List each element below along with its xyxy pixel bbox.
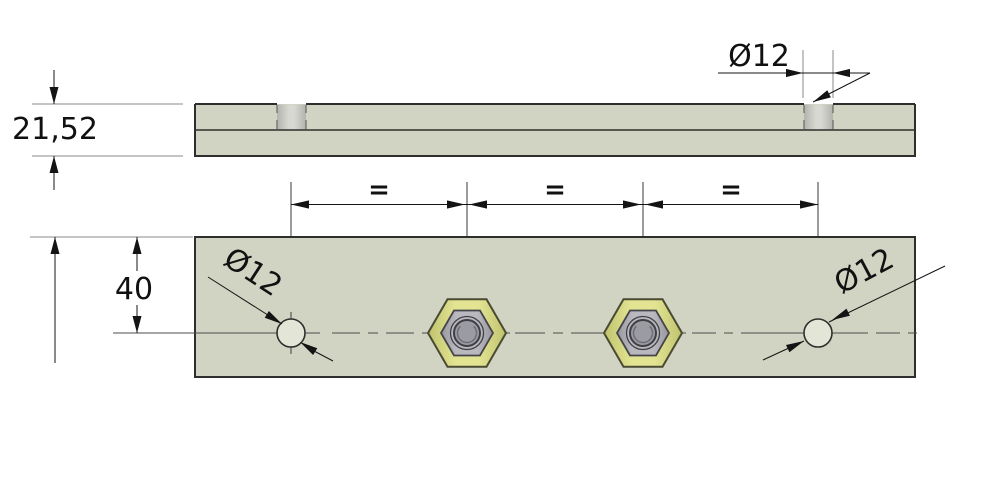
arrowhead-right-icon: [623, 200, 641, 208]
equal-spacing-label: =: [720, 175, 742, 205]
thickness-dimension-label: 21,52: [12, 112, 98, 147]
hole-offset-label: 40: [115, 272, 153, 307]
dim-hole-offset: 40: [30, 237, 193, 363]
arrowhead-right-icon: [447, 200, 465, 208]
arrowhead-down-icon: [133, 316, 142, 333]
dim-top-hole-diameter: Ø12: [718, 39, 870, 102]
leader-arrowhead-icon: [813, 90, 831, 102]
arrowhead-right-icon: [800, 200, 818, 208]
equal-spacing-label: =: [544, 175, 566, 205]
dim-thickness: 21,52: [12, 70, 183, 190]
arrowhead-left-icon: [833, 69, 850, 77]
arrowhead-up-icon: [133, 237, 142, 254]
top-hole-diameter-label: Ø12: [728, 39, 790, 74]
plan-view-plate-body: [195, 237, 915, 377]
arrowhead-left-icon: [291, 200, 309, 208]
arrowhead-down-icon: [50, 87, 59, 104]
arrowhead-up-icon: [51, 237, 60, 254]
arrowhead-up-icon: [50, 156, 59, 173]
arrowhead-left-icon: [469, 200, 487, 208]
equal-spacing-label: =: [368, 175, 390, 205]
arrowhead-left-icon: [645, 200, 663, 208]
side-view-right-bore: [804, 105, 833, 130]
plan-right-hole: [804, 319, 832, 347]
side-view-left-bore: [277, 105, 306, 130]
side-view: [195, 104, 915, 156]
technical-drawing-canvas: 21,52 Ø12 = = =: [0, 0, 1000, 500]
